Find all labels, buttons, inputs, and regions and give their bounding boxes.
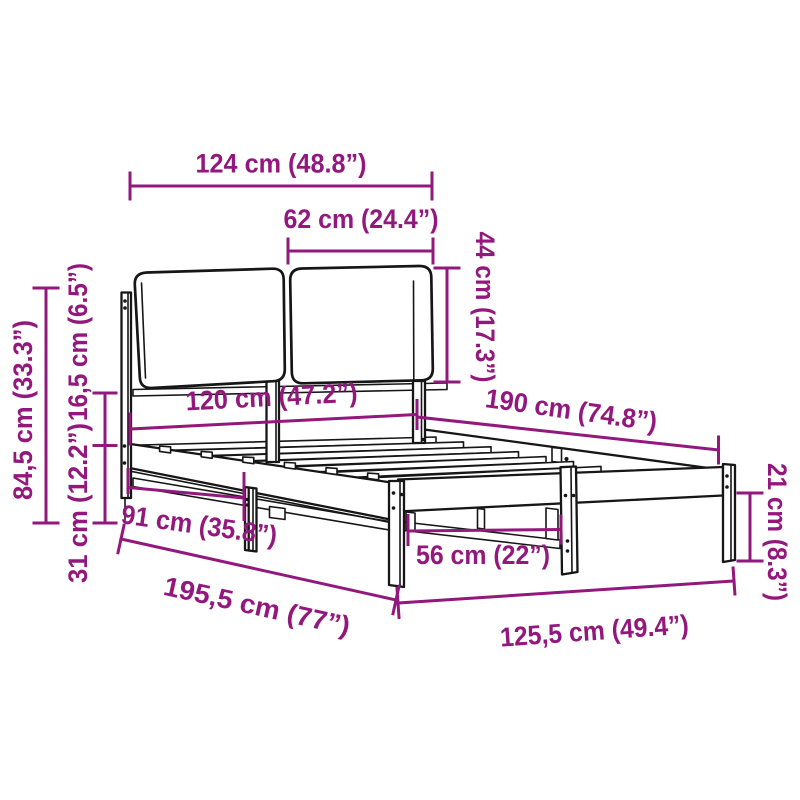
svg-text:62 cm (24.4”): 62 cm (24.4”) — [284, 204, 439, 234]
svg-text:124 cm (48.8”): 124 cm (48.8”) — [196, 149, 367, 179]
svg-text:21 cm (8.3”): 21 cm (8.3”) — [762, 463, 792, 601]
svg-text:31 cm (12.2”): 31 cm (12.2”) — [63, 423, 93, 583]
svg-text:84,5 cm (33.3”): 84,5 cm (33.3”) — [8, 320, 38, 500]
svg-text:56 cm (22”): 56 cm (22”) — [416, 540, 550, 570]
svg-text:44 cm (17.3”): 44 cm (17.3”) — [470, 232, 500, 383]
svg-text:16,5 cm (6.5”): 16,5 cm (6.5”) — [63, 263, 93, 421]
